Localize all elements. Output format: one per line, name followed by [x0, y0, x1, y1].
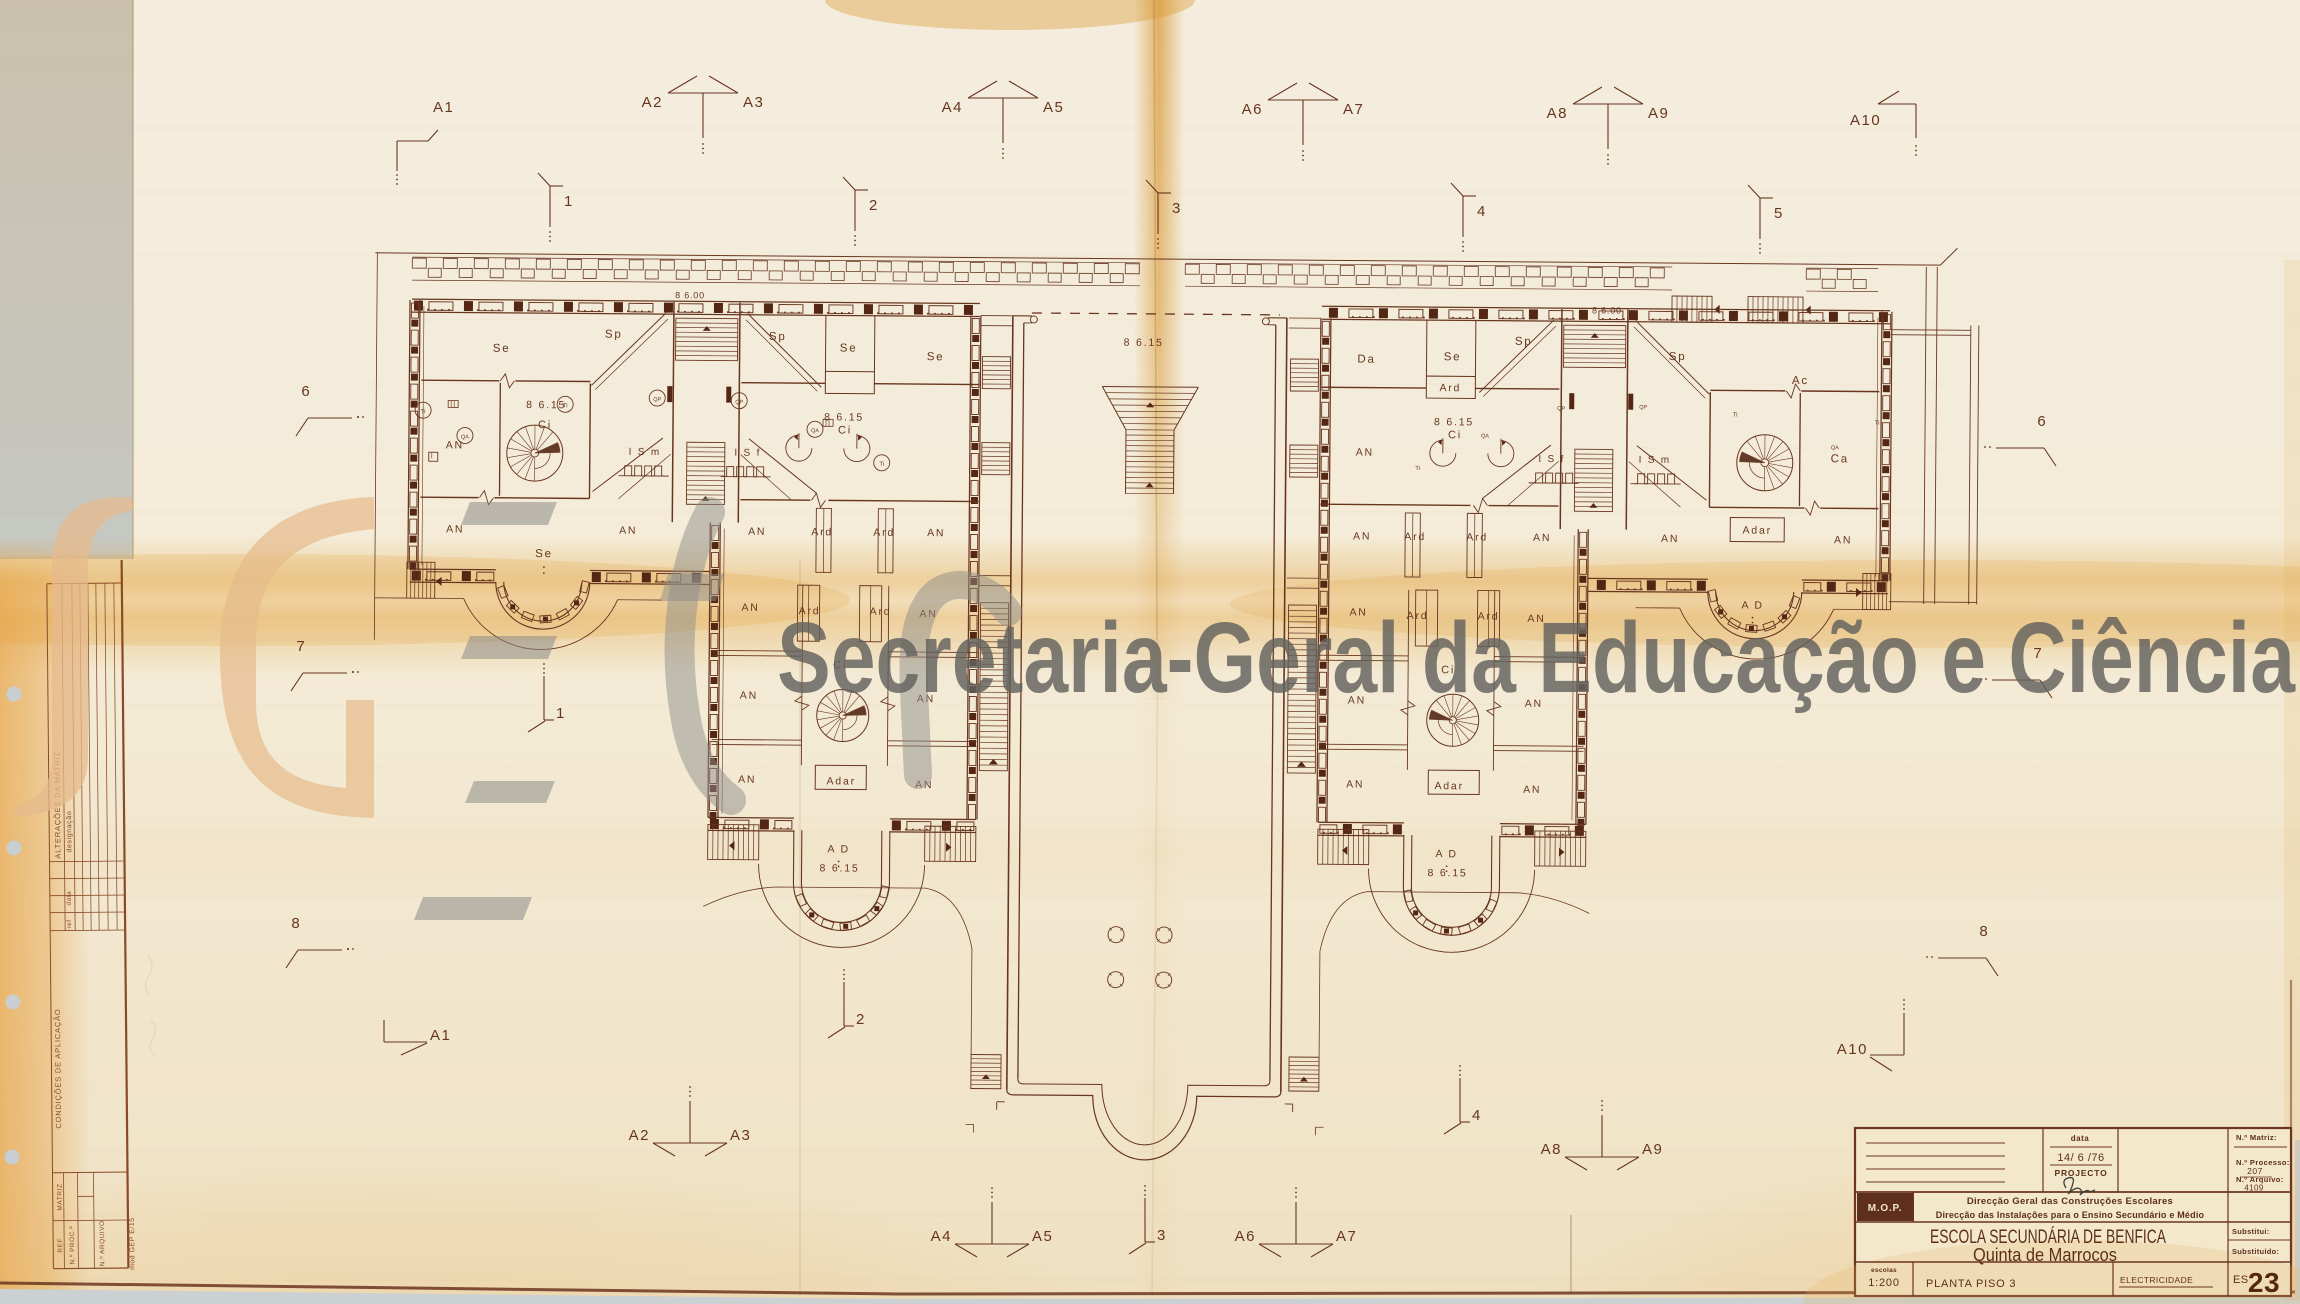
svg-text:4: 4 [1477, 203, 1486, 220]
svg-text:AN: AN [748, 526, 766, 538]
svg-text:Sp: Sp [1515, 336, 1533, 348]
svg-text:A3: A3 [730, 1127, 751, 1144]
svg-text:Direcção Geral das Construções: Direcção Geral das Construções Escolares [1967, 1196, 2173, 1207]
svg-text:PROJECTO: PROJECTO [2054, 1168, 2107, 1178]
svg-text:Ca: Ca [1831, 453, 1849, 465]
svg-text:1: 1 [564, 193, 573, 210]
svg-text:A10: A10 [1850, 112, 1881, 129]
svg-text:4: 4 [1472, 1107, 1481, 1124]
svg-text:QA: QA [1481, 433, 1489, 439]
svg-text:data: data [2071, 1134, 2090, 1143]
svg-text:A1: A1 [430, 1027, 451, 1044]
svg-text:Se: Se [535, 548, 553, 560]
svg-text:Se: Se [927, 351, 945, 363]
svg-text:A6: A6 [1242, 101, 1263, 118]
svg-text:AN: AN [927, 527, 945, 539]
svg-text:PLANTA PISO 3: PLANTA PISO 3 [1926, 1278, 2016, 1290]
svg-text:N.º Matriz:: N.º Matriz: [2236, 1133, 2277, 1142]
svg-text:Ti: Ti [879, 462, 884, 468]
svg-text:Substitui:: Substitui: [2232, 1227, 2270, 1236]
svg-text:1: 1 [556, 705, 565, 722]
svg-text:Se: Se [1444, 351, 1462, 363]
svg-text:5: 5 [1774, 205, 1783, 222]
svg-text:AN: AN [1661, 533, 1679, 545]
svg-text:Se: Se [493, 343, 511, 355]
svg-text:8 6.00: 8 6.00 [675, 290, 705, 300]
svg-text:ref: ref [66, 919, 73, 928]
svg-text:8 6.15: 8 6.15 [1434, 416, 1474, 428]
svg-text:data: data [66, 891, 73, 906]
svg-text:Sp: Sp [605, 329, 623, 341]
svg-text:Ard: Ard [811, 526, 833, 538]
svg-text:3: 3 [1157, 1227, 1166, 1244]
svg-text:7: 7 [296, 638, 305, 655]
svg-text:A1: A1 [433, 99, 454, 116]
svg-text:4109: 4109 [2244, 1184, 2264, 1193]
svg-text:A5: A5 [1043, 99, 1064, 116]
svg-text:AN: AN [1353, 530, 1371, 542]
svg-text:AN: AN [446, 523, 464, 535]
svg-text:I S f: I S f [1538, 454, 1565, 465]
svg-text:23: 23 [2248, 1267, 2280, 1298]
svg-text:AN: AN [1523, 784, 1541, 796]
svg-text:AN: AN [1356, 447, 1374, 459]
svg-text:A9: A9 [1642, 1141, 1663, 1158]
svg-text:N.º Processo:: N.º Processo: [2236, 1158, 2290, 1167]
svg-text:REF: REF [57, 1238, 64, 1253]
svg-text:Ard: Ard [1439, 382, 1461, 394]
svg-text:Ti: Ti [1875, 421, 1880, 427]
svg-text:8 6.15: 8 6.15 [1124, 337, 1164, 349]
svg-text:ES: ES [2233, 1274, 2248, 1286]
svg-text:Ci: Ci [1448, 429, 1462, 441]
svg-text:AN: AN [740, 690, 758, 702]
svg-text:AN: AN [1834, 534, 1852, 546]
svg-text:Ti: Ti [1415, 466, 1420, 472]
svg-text:I S m: I S m [1639, 455, 1671, 466]
svg-text:A7: A7 [1336, 1228, 1357, 1245]
svg-text:Adar: Adar [1742, 525, 1771, 537]
svg-text:Da: Da [1357, 354, 1375, 366]
svg-text:Direcção das Instalações para: Direcção das Instalações para o Ensino S… [1936, 1210, 2205, 1220]
svg-text:N.º PROC.ª: N.º PROC.ª [69, 1226, 76, 1265]
svg-text:AN: AN [741, 602, 759, 614]
svg-text:designação: designação [66, 811, 73, 853]
svg-text:Substituído:: Substituído: [2232, 1247, 2279, 1256]
svg-text:8: 8 [1979, 923, 1988, 940]
svg-text:Ti: Ti [1733, 412, 1738, 418]
svg-text:AN: AN [738, 774, 756, 786]
svg-text:3: 3 [1172, 200, 1181, 217]
svg-text:MATRIZ: MATRIZ [57, 1183, 64, 1210]
svg-text:A3: A3 [743, 94, 764, 111]
svg-text:Ti: Ti [563, 403, 568, 409]
svg-text:Ard: Ard [1404, 531, 1426, 543]
svg-text:Ci: Ci [538, 419, 552, 431]
svg-text:1:200: 1:200 [1868, 1277, 1900, 1289]
svg-text:CONDIÇÕES DE APLICAÇÃO: CONDIÇÕES DE APLICAÇÃO [53, 1008, 63, 1128]
svg-text:A10: A10 [1837, 1041, 1868, 1058]
svg-text:Ci: Ci [838, 424, 852, 436]
svg-text:escolas: escolas [1871, 1267, 1897, 1274]
svg-text:2: 2 [869, 197, 878, 214]
svg-text:8: 8 [291, 915, 300, 932]
svg-text:Se: Se [840, 342, 858, 354]
svg-text:A6: A6 [1235, 1228, 1256, 1245]
svg-text:A2: A2 [642, 94, 663, 111]
svg-text:A9: A9 [1648, 105, 1669, 122]
svg-text:6: 6 [301, 383, 310, 400]
svg-text:Sp: Sp [1669, 351, 1687, 363]
svg-text:QP: QP [1639, 405, 1647, 411]
svg-text:QP: QP [653, 397, 661, 403]
svg-text:AN: AN [619, 525, 637, 537]
svg-text:2: 2 [856, 1011, 865, 1028]
svg-text:AN: AN [446, 439, 464, 451]
svg-text:N.º ARQUIVO: N.º ARQUIVO [99, 1220, 106, 1266]
svg-text:Secretaria-Geral da Educação e: Secretaria-Geral da Educação e Ciência [777, 602, 2296, 714]
svg-text:A8: A8 [1547, 105, 1568, 122]
svg-text:Adar: Adar [826, 775, 855, 787]
svg-text:A8: A8 [1541, 1141, 1562, 1158]
svg-text:A7: A7 [1343, 101, 1364, 118]
svg-text:Ard: Ard [873, 527, 895, 539]
svg-text:8 6.15: 8 6.15 [824, 411, 864, 423]
svg-text:8 6.15: 8 6.15 [526, 399, 566, 411]
svg-text:Ti: Ti [421, 409, 426, 415]
svg-text:QA: QA [1831, 445, 1839, 451]
svg-text:Adar: Adar [1434, 780, 1463, 792]
svg-text:I S f: I S f [734, 448, 761, 459]
svg-text:A D: A D [1435, 848, 1457, 860]
svg-text:ELECTRICIDADE: ELECTRICIDADE [2120, 1275, 2193, 1285]
svg-text:A5: A5 [1032, 1228, 1053, 1245]
svg-text:Sp: Sp [769, 331, 787, 343]
svg-text:8 6.00: 8 6.00 [1592, 305, 1622, 315]
svg-text:6: 6 [2037, 413, 2046, 430]
svg-text:QP: QP [735, 400, 743, 406]
svg-text:A4: A4 [931, 1228, 952, 1245]
svg-text:A2: A2 [629, 1127, 650, 1144]
svg-text:QP: QP [1557, 406, 1565, 412]
svg-text:QA: QA [811, 428, 819, 434]
svg-text:AN: AN [1533, 532, 1551, 544]
svg-text:Ard: Ard [1466, 531, 1488, 543]
svg-text:14/ 6 /76: 14/ 6 /76 [2057, 1152, 2104, 1164]
svg-text:M.O.P.: M.O.P. [1868, 1203, 1903, 1214]
svg-text:8 6.15: 8 6.15 [820, 862, 860, 874]
svg-text:Ac: Ac [1792, 375, 1809, 387]
svg-text:A4: A4 [942, 99, 963, 116]
svg-text:8 6.15: 8 6.15 [1427, 867, 1467, 879]
svg-text:A D: A D [827, 843, 849, 855]
svg-text:I S m: I S m [629, 447, 661, 458]
svg-text:mod GEP E/15: mod GEP E/15 [129, 1217, 137, 1270]
svg-text:AN: AN [1346, 778, 1364, 790]
